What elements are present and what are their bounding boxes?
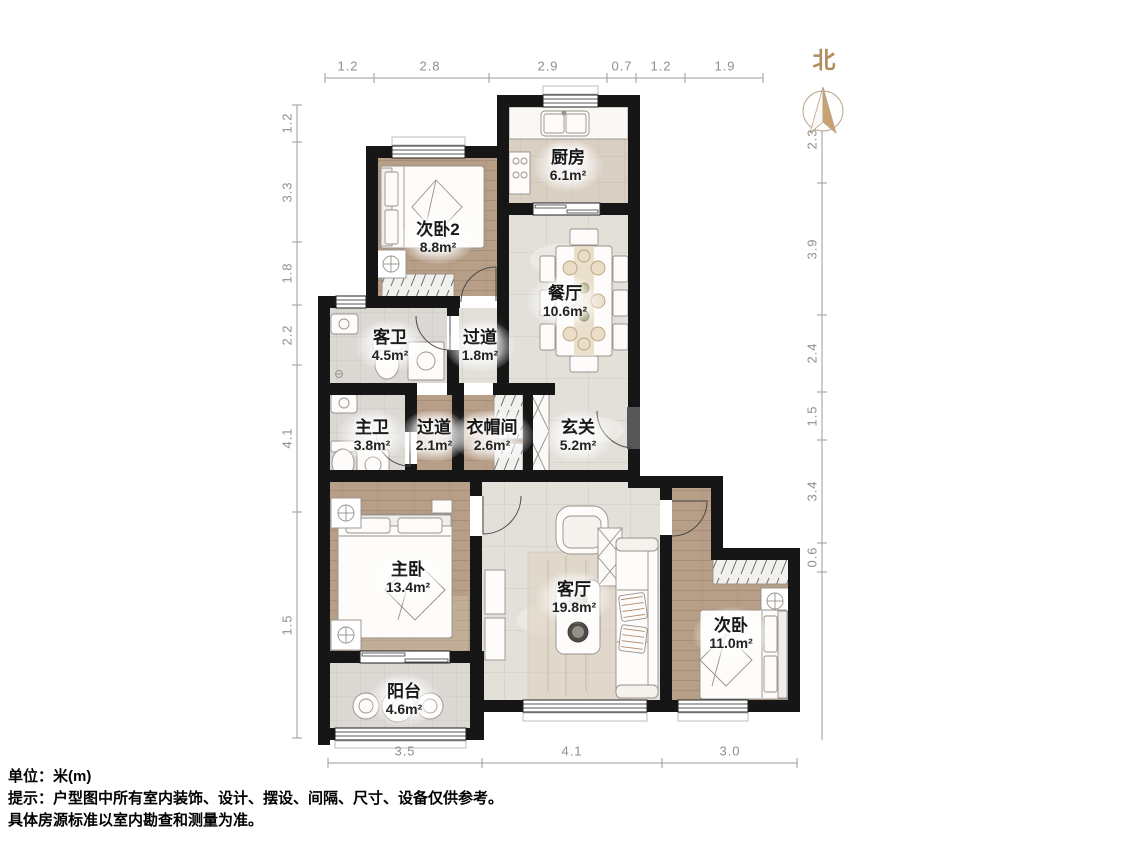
room-name: 主卫 bbox=[354, 418, 391, 437]
ac-unit-master-1 bbox=[331, 498, 361, 528]
room-label-master-bedroom: 主卧 13.4m² bbox=[370, 552, 446, 604]
dim-top-0: 1.2 bbox=[337, 59, 358, 74]
room-area: 13.4m² bbox=[386, 579, 430, 596]
dim-right-4: 3.4 bbox=[805, 480, 820, 501]
note-unit: 单位：米(m) bbox=[8, 766, 503, 788]
room-name: 过道 bbox=[462, 328, 499, 347]
room-name: 阳台 bbox=[386, 682, 423, 701]
dim-top-4: 1.2 bbox=[650, 59, 671, 74]
room-label-bedroom2: 次卧2 8.8m² bbox=[400, 212, 475, 264]
dim-bottom-0: 3.5 bbox=[394, 744, 415, 759]
room-name: 餐厅 bbox=[543, 284, 587, 303]
room-area: 5.2m² bbox=[560, 437, 597, 454]
dim-left-4: 4.1 bbox=[280, 427, 295, 448]
dim-left-1: 3.3 bbox=[280, 181, 295, 202]
dim-right-5: 0.6 bbox=[805, 546, 820, 567]
dim-top-3: 0.7 bbox=[611, 59, 632, 74]
room-name: 衣帽间 bbox=[467, 418, 518, 437]
window-living bbox=[523, 700, 647, 712]
room-name: 客卫 bbox=[372, 328, 409, 347]
room-name: 客厅 bbox=[552, 580, 596, 599]
dim-right-2: 2.4 bbox=[805, 342, 820, 363]
room-area: 4.5m² bbox=[372, 347, 409, 364]
room-label-dining: 餐厅 10.6m² bbox=[527, 276, 603, 328]
sofa-pillow-1 bbox=[618, 592, 647, 621]
window-guest-bath bbox=[336, 296, 366, 308]
room-label-hallway-north: 过道 1.8m² bbox=[446, 320, 515, 372]
window-balcony bbox=[335, 728, 466, 740]
room-area: 1.8m² bbox=[462, 347, 499, 364]
window-bedroom2 bbox=[392, 146, 465, 158]
room-area: 4.6m² bbox=[386, 701, 423, 718]
kitchen-stove bbox=[509, 152, 530, 194]
room-label-guest-bath: 客卫 4.5m² bbox=[356, 320, 425, 372]
room-name: 主卧 bbox=[386, 560, 430, 579]
sofa-pillow-2 bbox=[619, 625, 648, 654]
dim-top-1: 2.8 bbox=[419, 59, 440, 74]
room-label-cloakroom: 衣帽间 2.6m² bbox=[451, 410, 534, 462]
room-label-foyer: 玄关 5.2m² bbox=[544, 410, 613, 462]
north-compass bbox=[803, 87, 843, 133]
dim-bottom-2: 3.0 bbox=[719, 744, 740, 759]
room-area: 8.8m² bbox=[416, 239, 459, 256]
room-name: 次卧2 bbox=[416, 220, 459, 239]
ac-unit-master-2 bbox=[331, 620, 361, 650]
room-label-living: 客厅 19.8m² bbox=[536, 572, 612, 624]
dim-left-5: 1.5 bbox=[280, 614, 295, 635]
dim-top-2: 2.9 bbox=[537, 59, 558, 74]
room-area: 6.1m² bbox=[550, 167, 587, 184]
room-area: 2.6m² bbox=[467, 437, 518, 454]
ac-unit-bedroom2 bbox=[376, 250, 406, 278]
room-area: 11.0m² bbox=[709, 635, 753, 652]
room-name: 过道 bbox=[416, 418, 453, 437]
dim-left-2: 1.8 bbox=[280, 262, 295, 283]
room-area: 19.8m² bbox=[552, 599, 596, 616]
sofa bbox=[616, 538, 658, 698]
note-tip-line1: 提示：户型图中所有室内装饰、设计、摆设、间隔、尺寸、设备仅供参考。 bbox=[8, 788, 503, 810]
dim-bottom-1: 4.1 bbox=[561, 744, 582, 759]
room-label-master-bath: 主卫 3.8m² bbox=[338, 410, 407, 462]
room-label-kitchen: 厨房 6.1m² bbox=[534, 140, 603, 192]
note-tip-line2: 具体房源标准以室内勘查和测量为准。 bbox=[8, 810, 503, 832]
room-area: 2.1m² bbox=[416, 437, 453, 454]
floorplan-page: 厨房 6.1m² 次卧2 8.8m² 餐厅 10.6m² 客卫 4.5m² 过道… bbox=[0, 0, 1125, 844]
dim-left-0: 1.2 bbox=[280, 112, 295, 133]
floor-bedroom-nook bbox=[672, 488, 711, 563]
room-name: 玄关 bbox=[560, 418, 597, 437]
room-name: 厨房 bbox=[550, 148, 587, 167]
north-label: 北 bbox=[813, 41, 836, 75]
room-area: 3.8m² bbox=[354, 437, 391, 454]
window-bedroom bbox=[678, 700, 748, 712]
room-name: 次卧 bbox=[709, 616, 753, 635]
dim-right-3: 1.5 bbox=[805, 405, 820, 426]
room-label-balcony: 阳台 4.6m² bbox=[370, 674, 439, 726]
dim-right-1: 3.9 bbox=[805, 238, 820, 259]
notes-block: 单位：米(m) 提示：户型图中所有室内装饰、设计、摆设、间隔、尺寸、设备仅供参考… bbox=[8, 766, 503, 832]
room-area: 10.6m² bbox=[543, 303, 587, 320]
window-kitchen bbox=[543, 95, 598, 107]
dim-left-3: 2.2 bbox=[280, 324, 295, 345]
wardrobe-bedroom bbox=[713, 559, 790, 584]
dim-top-5: 1.9 bbox=[714, 59, 735, 74]
room-label-bedroom: 次卧 11.0m² bbox=[693, 608, 769, 660]
dim-right-0: 2.3 bbox=[805, 128, 820, 149]
